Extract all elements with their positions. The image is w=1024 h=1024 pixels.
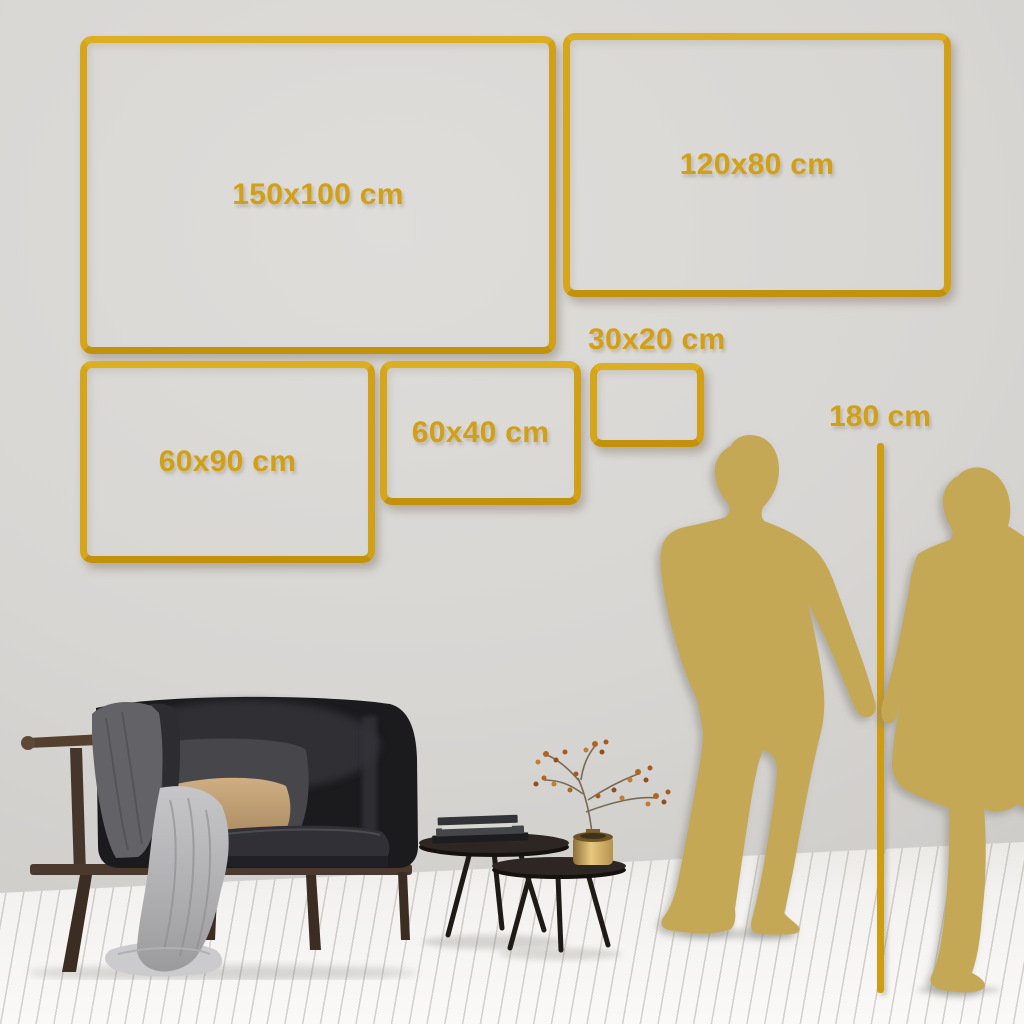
size-label-60x90: 60x90 cm bbox=[159, 445, 297, 479]
size-frame-60x90: 60x90 cm bbox=[80, 361, 375, 563]
size-frame-120x80: 120x80 cm bbox=[563, 33, 951, 297]
couple-silhouette bbox=[620, 430, 1024, 1005]
brass-vase bbox=[573, 829, 613, 865]
sofa-floor-shadow bbox=[27, 965, 417, 980]
size-frame-150x100: 150x100 cm bbox=[80, 36, 556, 354]
small-coffee-table bbox=[492, 857, 626, 950]
sofa-illustration bbox=[10, 688, 450, 980]
size-label-150x100: 150x100 cm bbox=[232, 178, 404, 212]
size-label-60x40: 60x40 cm bbox=[412, 416, 550, 450]
sofa bbox=[21, 697, 418, 980]
size-label-120x80: 120x80 cm bbox=[680, 148, 835, 182]
size-label-30x20: 30x20 cm bbox=[588, 323, 726, 357]
height-reference-label: 180 cm bbox=[816, 400, 944, 434]
size-guide-scene: 150x100 cm 120x80 cm 60x90 cm 60x40 cm 3… bbox=[0, 0, 1024, 1024]
man-silhouette bbox=[661, 435, 876, 935]
size-frame-60x40: 60x40 cm bbox=[380, 361, 581, 505]
books-stack bbox=[432, 814, 529, 843]
woman-silhouette bbox=[881, 467, 1024, 992]
